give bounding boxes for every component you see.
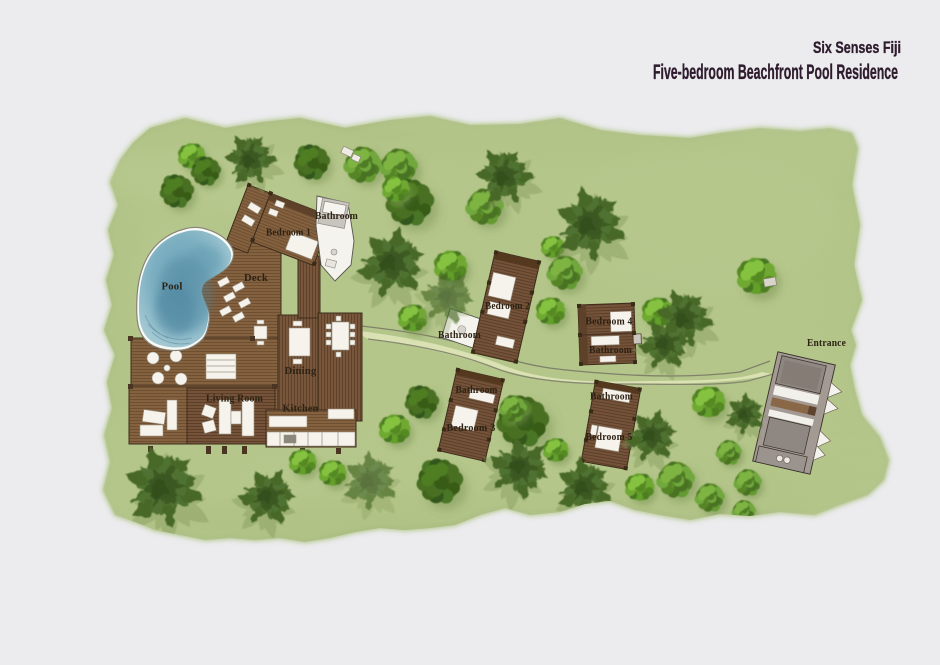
svg-text:Dining: Dining	[285, 366, 317, 377]
svg-text:Kitchen: Kitchen	[283, 404, 319, 415]
svg-text:Bedroom 1: Bedroom 1	[266, 228, 311, 239]
svg-text:Entrance: Entrance	[807, 338, 846, 349]
svg-text:Bathroom: Bathroom	[315, 211, 358, 222]
svg-text:Bathroom: Bathroom	[589, 345, 632, 356]
svg-text:Six Senses Fiji: Six Senses Fiji	[813, 38, 901, 57]
svg-text:Bedroom 2: Bedroom 2	[485, 301, 530, 312]
svg-text:Bedroom 4: Bedroom 4	[586, 317, 633, 328]
svg-text:Deck: Deck	[244, 273, 268, 284]
svg-text:Bedroom 5: Bedroom 5	[586, 432, 633, 443]
svg-text:Bathroom: Bathroom	[438, 330, 481, 341]
svg-text:Pool: Pool	[162, 282, 183, 293]
svg-text:Bathroom: Bathroom	[456, 385, 498, 396]
svg-text:Living Room: Living Room	[206, 394, 263, 405]
svg-text:Bedroom 3: Bedroom 3	[447, 423, 496, 434]
svg-text:Bathroom: Bathroom	[590, 392, 633, 403]
svg-text:Five-bedroom Beachfront Pool R: Five-bedroom Beachfront Pool Residence	[653, 61, 898, 84]
